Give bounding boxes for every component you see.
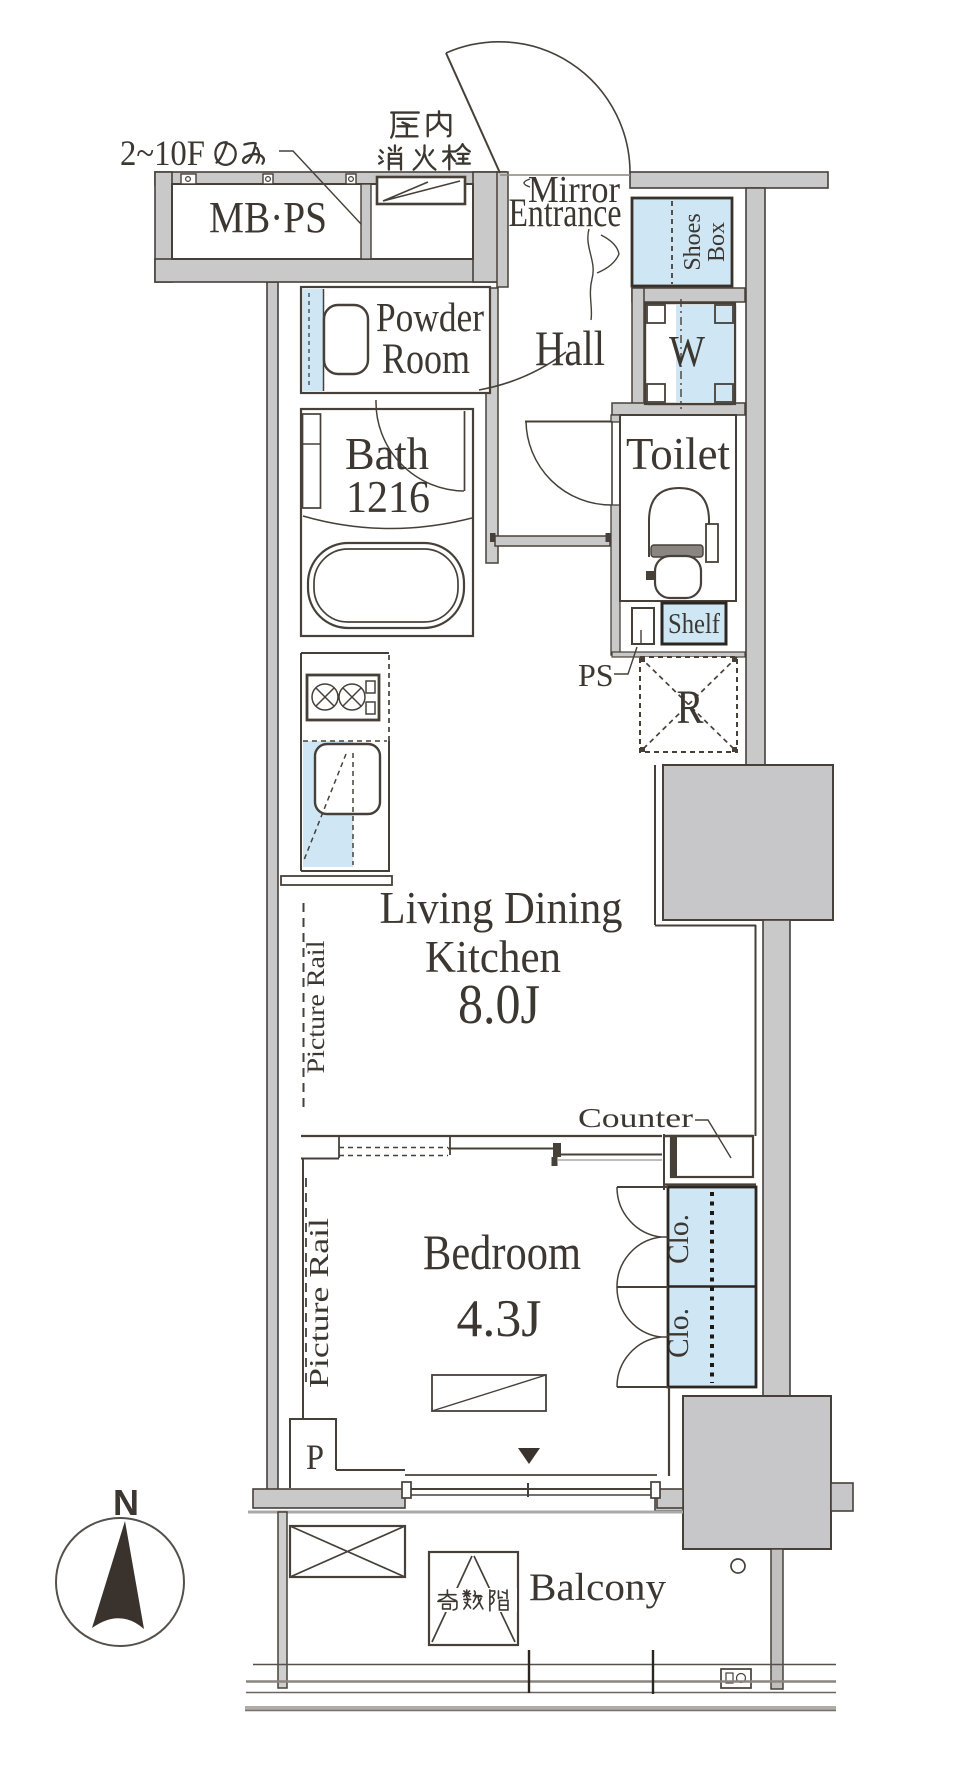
svg-text:PS: PS (578, 657, 614, 693)
svg-text:N: N (113, 1482, 139, 1523)
svg-text:Powder: Powder (376, 294, 484, 340)
svg-text:MB·PS: MB·PS (209, 193, 327, 242)
svg-text:Toilet: Toilet (626, 429, 730, 479)
svg-text:4.3J: 4.3J (457, 1290, 542, 1348)
svg-text:R: R (677, 681, 704, 734)
svg-text:P: P (306, 1437, 324, 1477)
svg-text:Hall: Hall (535, 320, 605, 376)
svg-text:Clo.: Clo. (662, 1214, 695, 1264)
svg-text:8.0J: 8.0J (458, 974, 540, 1036)
svg-text:Room: Room (382, 336, 470, 383)
svg-text:Shelf: Shelf (668, 608, 720, 640)
svg-text:Clo.: Clo. (662, 1308, 695, 1358)
svg-text:Shoes: Shoes (680, 213, 706, 270)
svg-text:Counter: Counter (578, 1103, 693, 1133)
svg-text:Balcony: Balcony (529, 1566, 667, 1609)
svg-text:Picture Rail: Picture Rail (303, 940, 330, 1073)
svg-text:W: W (669, 327, 705, 376)
svg-text:Living Dining: Living Dining (380, 882, 623, 933)
svg-text:Picture Rail: Picture Rail (304, 1218, 334, 1388)
svg-text:Bedroom: Bedroom (423, 1224, 581, 1280)
svg-text:1216: 1216 (346, 472, 430, 522)
svg-text:Box: Box (704, 222, 730, 262)
svg-text:2~10F: 2~10F (120, 133, 205, 173)
svg-text:Entrance: Entrance (509, 190, 622, 235)
